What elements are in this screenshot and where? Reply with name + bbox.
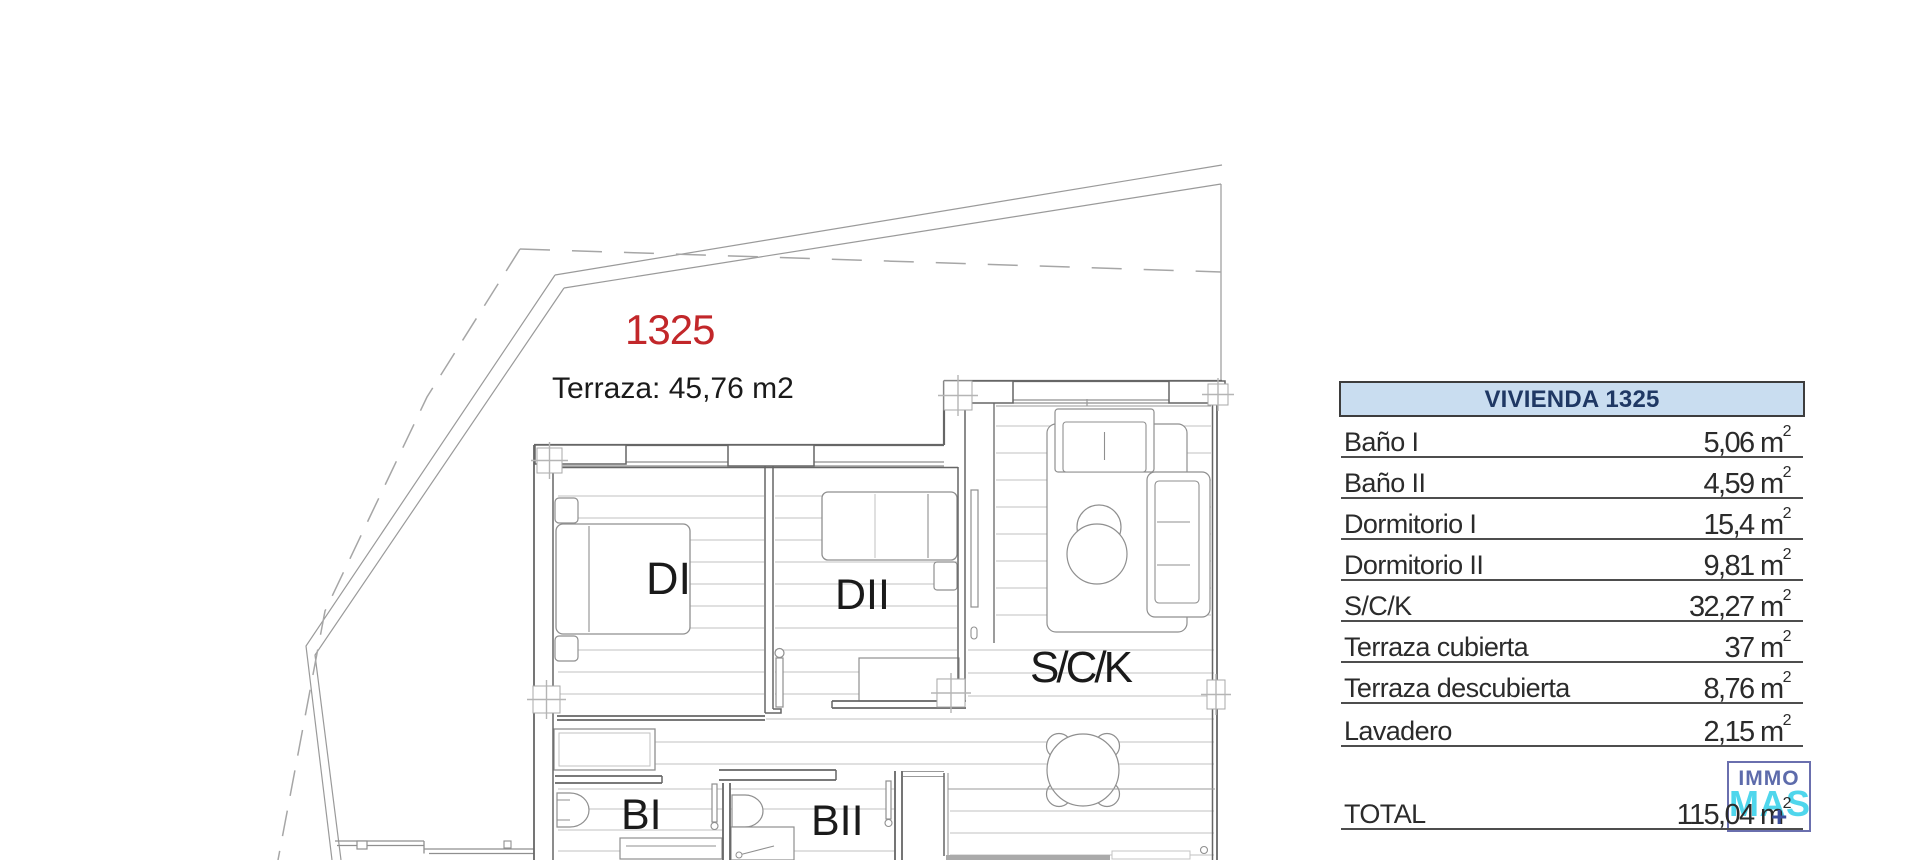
svg-text:Terraza: 45,76 m2: Terraza: 45,76 m2 <box>552 372 794 405</box>
svg-text:S/C/K: S/C/K <box>1030 643 1133 692</box>
svg-text:DI: DI <box>646 553 691 604</box>
svg-text:DII: DII <box>835 571 890 619</box>
svg-text:1325: 1325 <box>625 306 714 353</box>
svg-text:BI: BI <box>621 791 662 839</box>
svg-text:BII: BII <box>811 797 864 845</box>
